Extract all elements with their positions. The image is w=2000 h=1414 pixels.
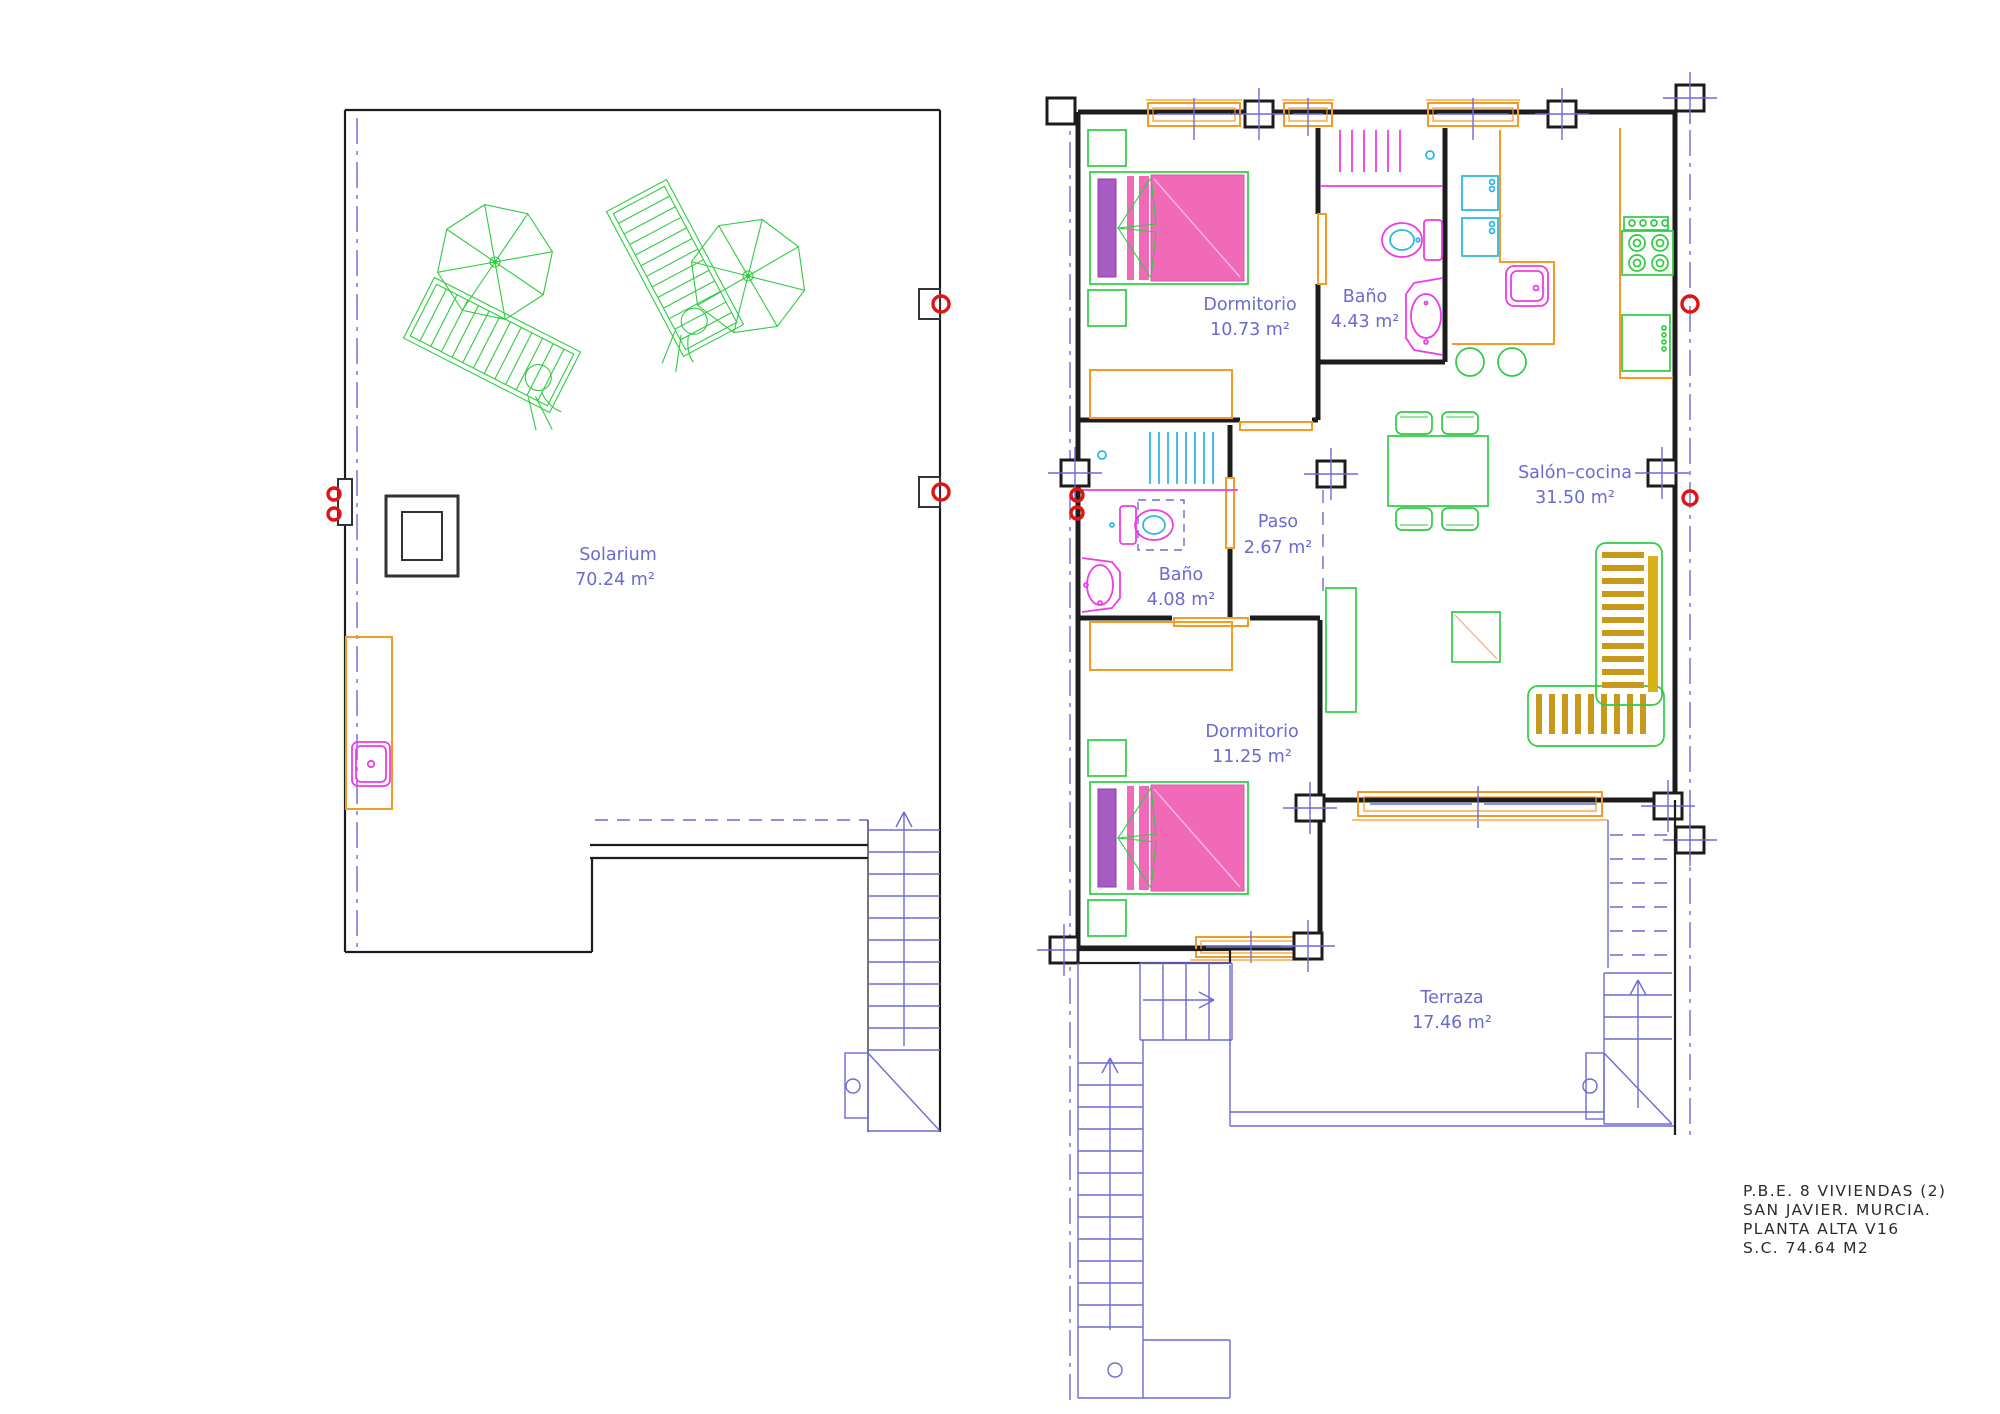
sink-icon [352, 742, 390, 786]
sofa-icon [1528, 543, 1664, 746]
toilet-icon [1110, 500, 1184, 550]
room-area-dormitorio-1: 10.73 m² [1210, 320, 1290, 340]
wardrobe [1090, 370, 1232, 418]
room-label-bano-2: Baño [1159, 565, 1204, 585]
door [1318, 214, 1326, 284]
room-label-dormitorio-2: Dormitorio [1205, 722, 1298, 742]
shower-icon [1082, 432, 1238, 490]
title-line-2: SAN JAVIER. MURCIA. [1743, 1201, 1931, 1219]
sun-lounger-icon [587, 180, 748, 376]
room-label-terraza: Terraza [1419, 988, 1483, 1008]
room-label-salon: Salón–cocina [1518, 463, 1632, 483]
umbrella-icon [431, 198, 559, 326]
room-area-solarium: 70.24 m² [575, 570, 655, 590]
tv-bench-icon [1326, 588, 1356, 712]
room-area-bano-1: 4.43 m² [1331, 312, 1400, 332]
sink-icon [1506, 266, 1548, 306]
door [1226, 478, 1234, 548]
room-label-dormitorio-1: Dormitorio [1203, 295, 1296, 315]
room-area-bano-2: 4.08 m² [1147, 590, 1216, 610]
stool-icon [1456, 348, 1484, 376]
stool-icon [1498, 348, 1526, 376]
dining-table-icon [1388, 412, 1488, 530]
solarium-step-wall [590, 845, 868, 858]
room-area-salon: 31.50 m² [1535, 488, 1615, 508]
solarium-floor-plan: Solarium 70.24 m² [328, 110, 949, 1132]
apartment-floor-plan: Dormitorio 10.73 m² Baño 4.43 m² Salón–c… [1037, 72, 1717, 1400]
shower-icon [1320, 130, 1443, 186]
room-label-solarium: Solarium [579, 545, 657, 565]
room-label-paso: Paso [1258, 512, 1298, 532]
stairs-icon [1583, 820, 1672, 1124]
stairs-icon [845, 812, 940, 1132]
oven-icon [1622, 315, 1670, 371]
room-area-dormitorio-2: 11.25 m² [1212, 747, 1292, 767]
toilet-icon [1382, 220, 1442, 260]
room-label-bano-1: Baño [1343, 287, 1388, 307]
sink-icon [1406, 278, 1443, 355]
floor-plan-sheet: Solarium 70.24 m² [0, 0, 2000, 1414]
sun-lounger-icon [394, 277, 590, 436]
coffee-table-detail [1455, 615, 1497, 659]
window [1352, 786, 1608, 828]
title-line-3: PLANTA ALTA V16 [1743, 1220, 1900, 1238]
wardrobe [1090, 622, 1232, 670]
window [1146, 98, 1520, 140]
door [1240, 422, 1312, 430]
title-line-1: P.B.E. 8 VIVIENDAS (2) [1743, 1182, 1946, 1200]
bed-icon [1088, 740, 1248, 936]
solarium-outer-wall [345, 110, 940, 1132]
pillar [919, 289, 940, 319]
sink-icon [1082, 558, 1120, 612]
chimney [386, 496, 458, 576]
title-block: P.B.E. 8 VIVIENDAS (2) SAN JAVIER. MURCI… [1743, 1182, 1946, 1257]
pillar [919, 477, 940, 507]
stairs-icon [1078, 950, 1232, 1398]
kitchen-counter [1452, 128, 1673, 378]
hob-icon [1622, 217, 1673, 275]
title-line-4: S.C. 74.64 M2 [1743, 1239, 1869, 1257]
umbrella-icon [687, 215, 809, 337]
room-area-terraza: 17.46 m² [1412, 1013, 1492, 1033]
fridge-icon [1462, 176, 1498, 256]
room-area-paso: 2.67 m² [1244, 538, 1313, 558]
